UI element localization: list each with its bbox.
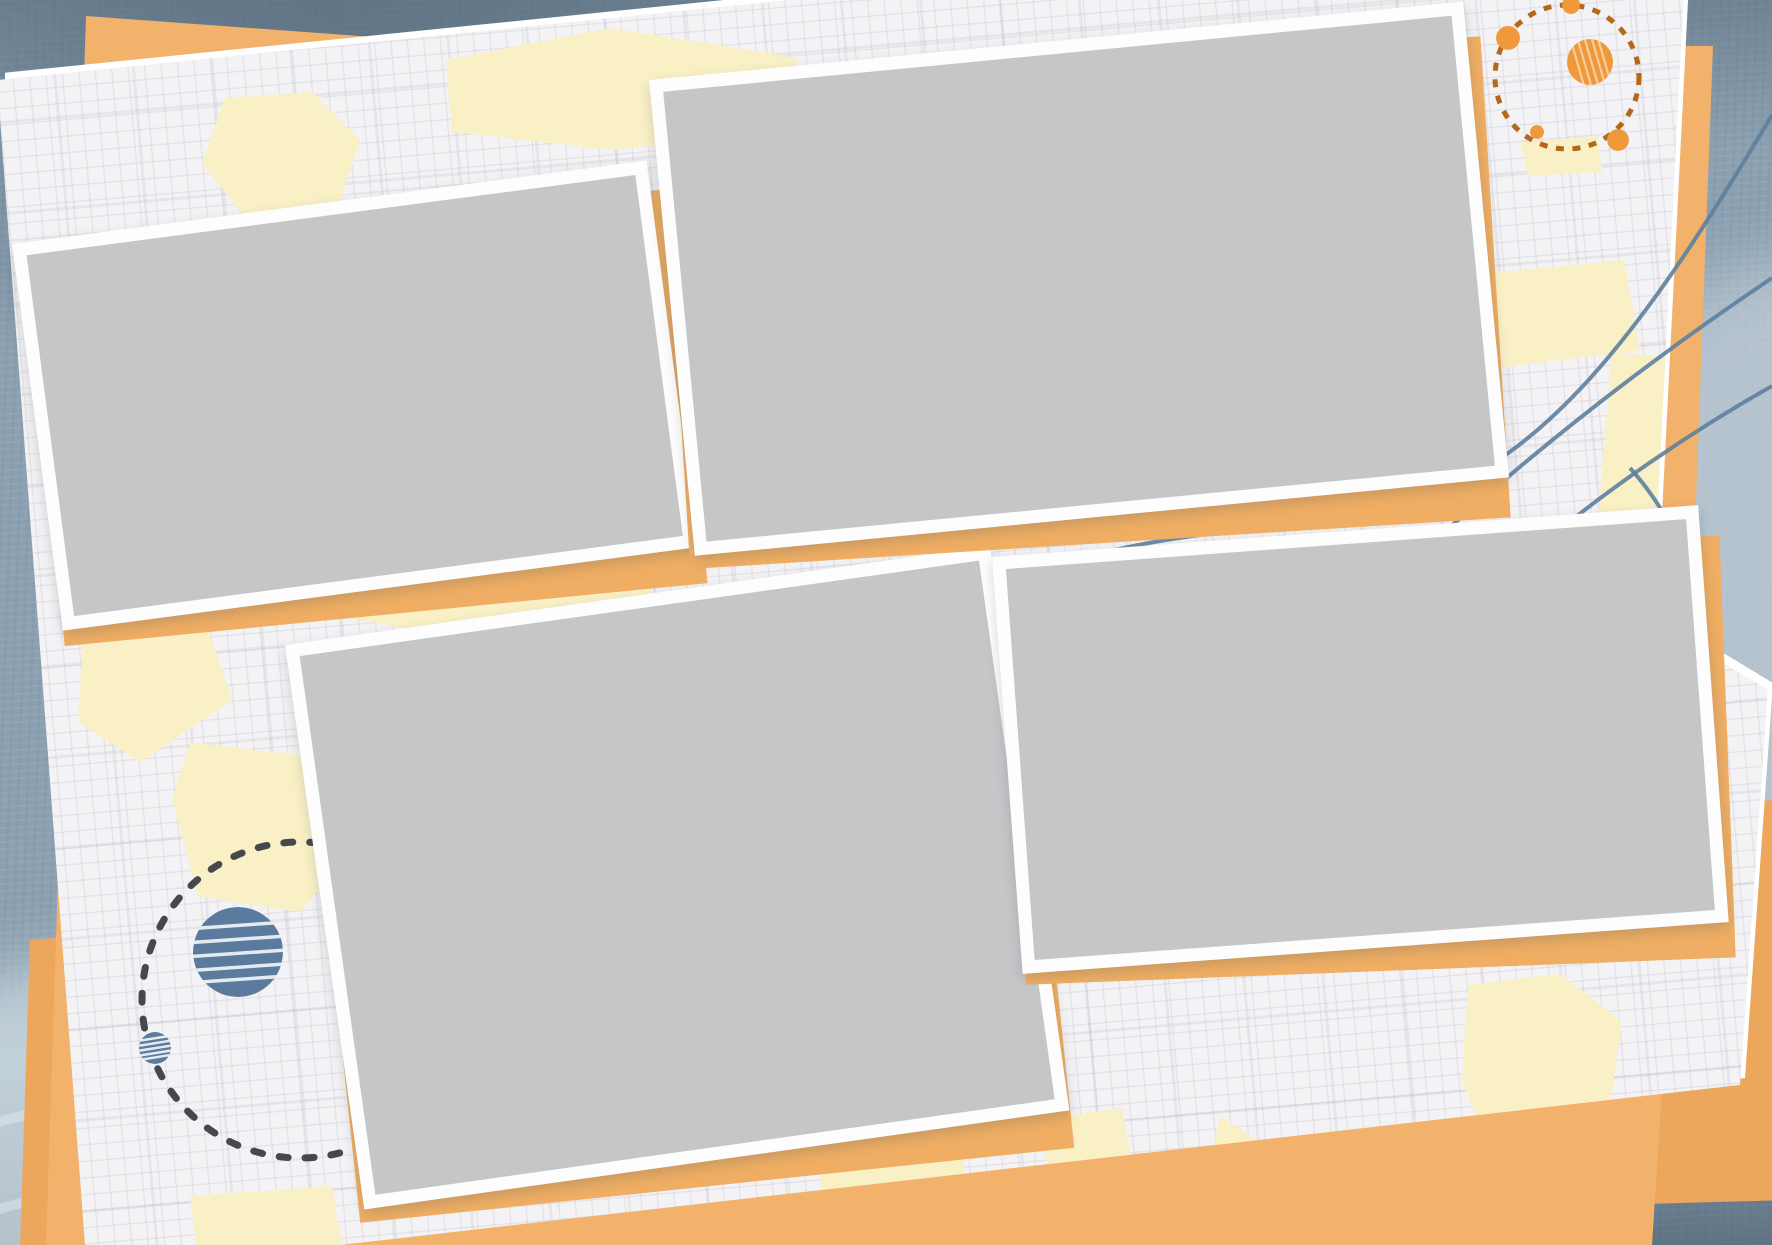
photo-frame-2 xyxy=(649,2,1509,556)
scrapbook-template-page xyxy=(0,0,1772,1245)
photo-placeholder-4 xyxy=(1006,519,1715,960)
photo-frame-4 xyxy=(992,505,1729,974)
photo-frame-1 xyxy=(12,160,697,630)
photo-frame-3 xyxy=(285,546,1069,1210)
photo-placeholder-3 xyxy=(300,561,1055,1195)
photo-placeholder-1 xyxy=(27,175,683,616)
photos-layer xyxy=(0,0,1772,1245)
photo-placeholder-2 xyxy=(663,16,1495,542)
